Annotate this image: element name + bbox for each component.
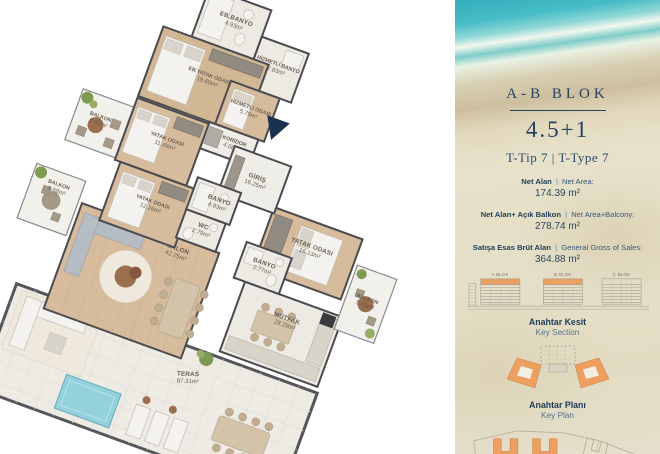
key-section-title-en: Key Section — [455, 328, 660, 337]
key-section-diagram: A BLOK B BLOK C BLOK — [465, 270, 651, 315]
label-separator: | — [555, 243, 557, 252]
metric-net-area: Net Alan | Net Area: 174.39 m² — [455, 177, 660, 199]
info-panel: A-B BLOK 4.5+1 T-Tip 7 | T-Type 7 Net Al… — [455, 0, 660, 454]
metric-net-area-balcony: Net Alan+ Açık Balkon | Net Area+Balcony… — [455, 210, 660, 232]
block-title: A-B BLOK — [455, 86, 660, 103]
label-separator: | — [556, 177, 558, 186]
metric-value: 174.39 m² — [455, 188, 660, 199]
metric-label-tr: Satışa Esas Brüt Alan — [473, 243, 551, 252]
section-block-label: A BLOK — [491, 272, 508, 277]
room-label: TERAS — [177, 371, 200, 379]
type-line: T-Tip 7 | T-Type 7 — [455, 150, 660, 166]
metric-label-en: General Gross of Sales: — [561, 243, 642, 252]
brochure-page: TERAS 87.31m² SALON 42.25m² — [0, 0, 660, 454]
metric-label-en: Net Area: — [562, 177, 594, 186]
section-block-label: C BLOK — [612, 272, 630, 277]
section-block-label: B BLOK — [554, 272, 571, 277]
key-section-title-tr: Anahtar Kesit — [455, 317, 660, 327]
title-divider — [510, 110, 606, 111]
metric-value: 278.74 m² — [455, 221, 660, 232]
label-separator: | — [565, 210, 567, 219]
metric-value: 364.88 m² — [455, 254, 660, 265]
metric-gross-sales: Satışa Esas Brüt Alan | General Gross of… — [455, 243, 660, 265]
unit-type: 4.5+1 — [455, 117, 660, 143]
key-plan-diagram — [499, 342, 617, 398]
key-plan-title-en: Key Plan — [455, 411, 660, 420]
metric-label-tr: Net Alan — [521, 177, 552, 186]
floor-plan-area: TERAS 87.31m² SALON 42.25m² — [0, 0, 455, 454]
floor-plan: TERAS 87.31m² SALON 42.25m² — [0, 0, 455, 454]
metric-label-tr: Net Alan+ Açık Balkon — [481, 210, 561, 219]
site-plan-diagram: A BLOK B BLOK C BLOK — [470, 425, 646, 454]
metric-label-en: Net Area+Balcony: — [571, 210, 634, 219]
key-plan-title-tr: Anahtar Planı — [455, 400, 660, 410]
room-area: 87.31m² — [177, 379, 199, 386]
